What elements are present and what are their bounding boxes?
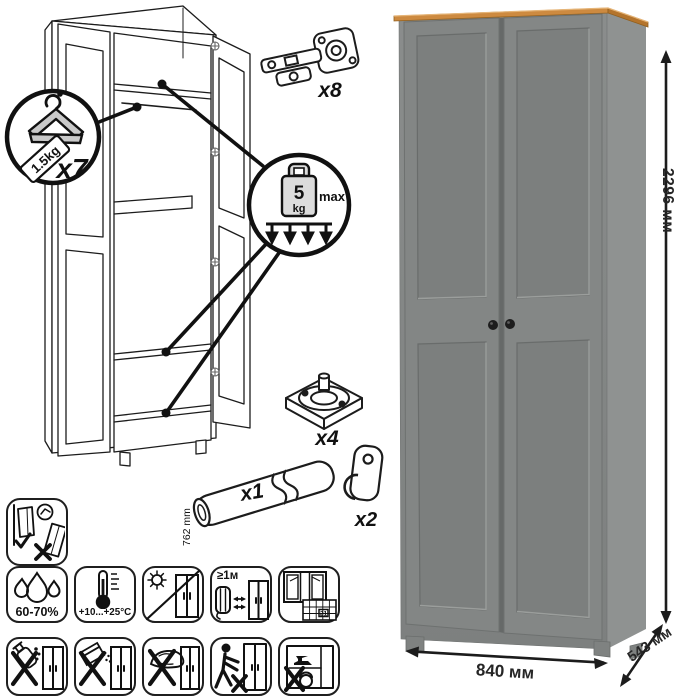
no-pushing-icon (213, 640, 269, 693)
hinge-icon (258, 27, 361, 89)
care-icon-anchor-to-wall (6, 498, 68, 566)
humidity-label: 60-70% (8, 605, 66, 619)
care-icon-no-abrasive-powder (74, 637, 136, 696)
wireframe-cabinet (45, 6, 250, 466)
thermometer-icon (77, 569, 133, 609)
care-icon-humidity: 60-70% (6, 566, 68, 623)
rod-icon: x1 762 mm (181, 457, 337, 546)
temperature-label: +10...+25°C (76, 607, 134, 618)
wardrobe-body (394, 8, 648, 659)
shelf-load-callout: 5 kg max (249, 155, 349, 255)
humidity-drops-icon (9, 569, 65, 609)
rod-qty-label: x1 (238, 479, 266, 506)
no-solvents-icon (9, 640, 65, 693)
height-dimension-label: 2296 мм (658, 168, 676, 233)
hinge-qty-label: x8 (317, 79, 342, 102)
no-sunlight-icon (145, 569, 201, 621)
hook-qty-label: x2 (354, 509, 377, 531)
load-max-label: max (319, 189, 346, 204)
hook-icon: x2 (343, 444, 383, 531)
care-icon-no-heavy-items (278, 637, 340, 696)
care-icon-no-abrasive-scrubbing (142, 637, 204, 696)
heat-distance-label: ≥1м (217, 570, 238, 582)
load-value: 5 (294, 183, 305, 204)
calendar-day-label: 21 (320, 611, 328, 618)
wardrobe-instruction-sheet: 1.5kg x7 5 kg max (0, 0, 683, 700)
no-scrubbing-icon (145, 640, 201, 693)
rod-length-label: 762 mm (181, 508, 193, 546)
wardrobe-product-image (380, 0, 683, 700)
care-icon-distance-from-heat: ≥1м (210, 566, 272, 623)
anchor-to-wall-icon (9, 501, 65, 563)
care-icon-temperature: +10...+25°C (74, 566, 136, 623)
hanger-callout: 1.5kg x7 (7, 91, 99, 184)
care-icon-no-pushing (210, 637, 272, 696)
foot-qty-label: x4 (314, 427, 339, 450)
care-icon-no-solvents (6, 637, 68, 696)
foot-icon (286, 374, 362, 430)
no-powder-icon (77, 640, 133, 693)
window-calendar-icon: 21 (281, 569, 339, 622)
no-heavy-load-icon (281, 640, 337, 693)
load-unit: kg (293, 203, 306, 215)
care-icon-ventilation: 21 (278, 566, 340, 623)
assembly-line-drawing: 1.5kg x7 5 kg max (0, 0, 390, 560)
hanger-qty-label: x7 (54, 153, 89, 184)
care-icon-no-direct-sunlight (142, 566, 204, 623)
